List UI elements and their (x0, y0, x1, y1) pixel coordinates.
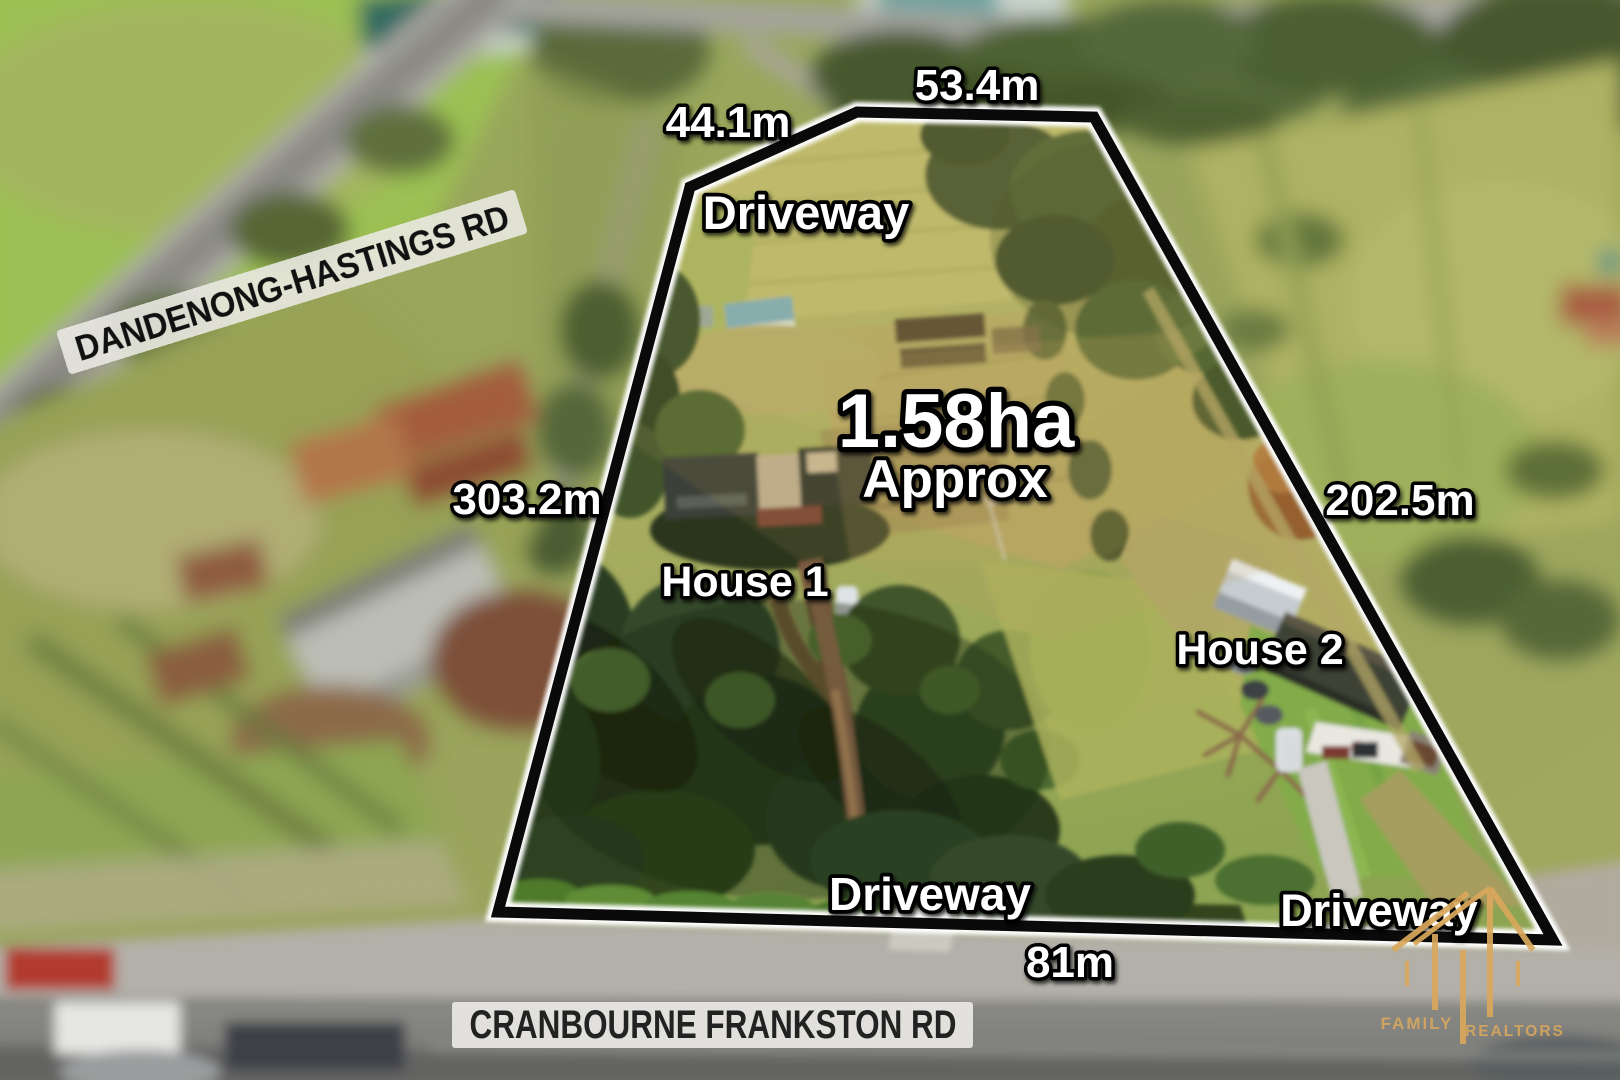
svg-text:53.4m: 53.4m (915, 61, 1040, 110)
svg-text:Approx: Approx (862, 450, 1048, 509)
svg-text:44.1m: 44.1m (666, 98, 791, 147)
svg-text:REALTORS: REALTORS (1465, 1023, 1565, 1040)
svg-text:81m: 81m (1026, 938, 1114, 987)
svg-text:Driveway: Driveway (829, 868, 1031, 920)
svg-text:202.5m: 202.5m (1325, 476, 1474, 525)
svg-text:FAMILY: FAMILY (1381, 1014, 1454, 1033)
svg-text:House 2: House 2 (1176, 626, 1343, 674)
svg-text:House 1: House 1 (661, 558, 828, 606)
svg-text:CRANBOURNE FRANKSTON RD: CRANBOURNE FRANKSTON RD (470, 1003, 957, 1047)
svg-text:Driveway: Driveway (703, 186, 909, 239)
svg-text:303.2m: 303.2m (452, 475, 601, 524)
